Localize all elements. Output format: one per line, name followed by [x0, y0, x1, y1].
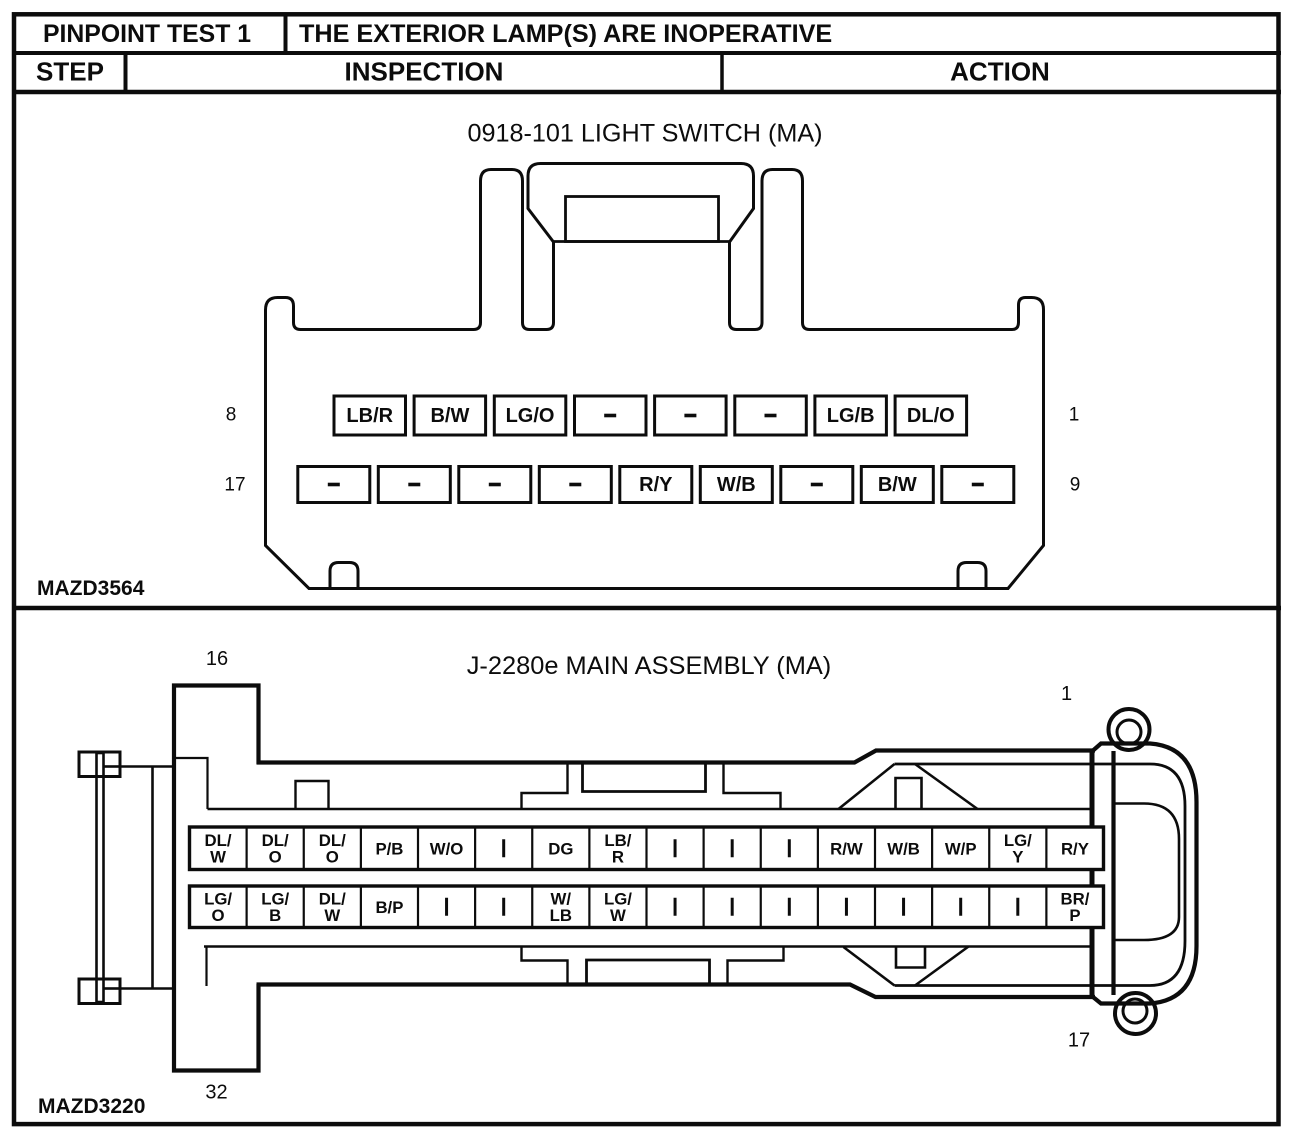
svg-text:B/W: B/W — [878, 474, 917, 496]
svg-text:LG/B: LG/B — [827, 405, 875, 427]
svg-text:W/B: W/B — [887, 839, 920, 858]
svg-text:B: B — [269, 906, 281, 925]
svg-text:17: 17 — [1068, 1030, 1090, 1052]
svg-text:W: W — [324, 906, 340, 925]
svg-text:O: O — [269, 847, 282, 866]
svg-text:LB/R: LB/R — [346, 405, 393, 427]
svg-text:ACTION: ACTION — [950, 57, 1050, 87]
svg-text:0918-101 LIGHT SWITCH (MA): 0918-101 LIGHT SWITCH (MA) — [467, 120, 822, 148]
svg-text:O: O — [212, 906, 225, 925]
svg-text:W: W — [610, 906, 626, 925]
svg-text:1: 1 — [1069, 405, 1080, 426]
svg-text:R/W: R/W — [830, 839, 863, 858]
svg-text:INSPECTION: INSPECTION — [345, 57, 504, 87]
svg-text:MAZD3220: MAZD3220 — [38, 1095, 145, 1118]
svg-text:R/Y: R/Y — [1061, 839, 1089, 858]
svg-text:O: O — [326, 847, 339, 866]
svg-text:16: 16 — [206, 648, 228, 670]
svg-text:LG/O: LG/O — [506, 405, 555, 427]
svg-text:P/B: P/B — [375, 839, 403, 858]
svg-text:MAZD3564: MAZD3564 — [37, 577, 145, 600]
svg-text:W/P: W/P — [945, 839, 977, 858]
svg-text:B/W: B/W — [430, 405, 469, 427]
svg-text:R/Y: R/Y — [639, 474, 673, 496]
svg-text:P: P — [1069, 906, 1080, 925]
svg-text:B/P: B/P — [375, 898, 403, 917]
svg-text:R: R — [612, 847, 624, 866]
svg-text:STEP: STEP — [36, 57, 104, 87]
svg-text:W/B: W/B — [717, 474, 756, 496]
svg-text:DG: DG — [548, 839, 573, 858]
svg-text:DL/O: DL/O — [907, 405, 955, 427]
svg-text:W/O: W/O — [430, 839, 464, 858]
svg-text:W: W — [210, 847, 226, 866]
svg-text:9: 9 — [1070, 475, 1081, 496]
svg-text:Y: Y — [1012, 847, 1023, 866]
svg-text:J-2280e MAIN ASSEMBLY (MA): J-2280e MAIN ASSEMBLY (MA) — [467, 652, 832, 680]
svg-text:32: 32 — [205, 1082, 227, 1104]
svg-text:8: 8 — [226, 405, 237, 426]
svg-text:THE EXTERIOR LAMP(S) ARE INOPE: THE EXTERIOR LAMP(S) ARE INOPERATIVE — [299, 20, 832, 48]
svg-text:17: 17 — [224, 475, 245, 496]
svg-text:PINPOINT TEST 1: PINPOINT TEST 1 — [43, 21, 251, 48]
svg-text:1: 1 — [1061, 683, 1072, 705]
svg-text:LB: LB — [550, 906, 572, 925]
